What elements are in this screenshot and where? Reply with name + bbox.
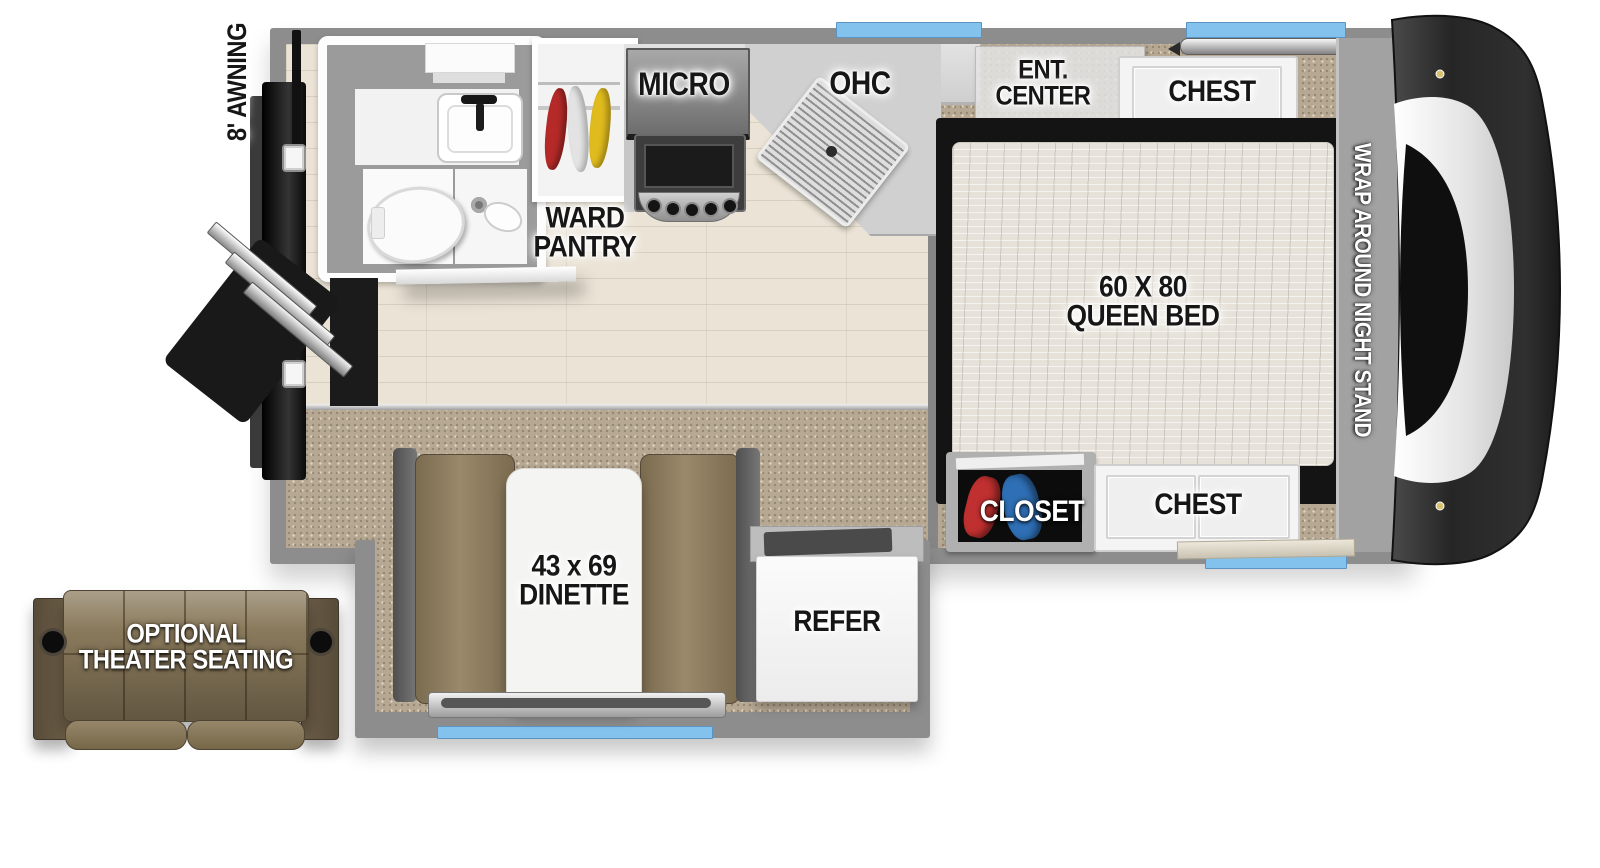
hanging-clothes-red	[542, 87, 570, 171]
pantry-shelf-line	[538, 82, 620, 85]
grab-handle-bar	[1180, 38, 1354, 55]
bench-cap-left	[393, 448, 417, 702]
cab-marker-light-top	[1436, 70, 1444, 78]
rail-latch-top	[282, 144, 306, 172]
stove-window	[644, 144, 734, 188]
stove-knob-1	[646, 198, 662, 214]
awning-label: 8' AWNING	[225, 23, 251, 141]
closet-label: CLOSET	[980, 498, 1084, 527]
dinette-window	[437, 726, 713, 739]
refer-lid	[764, 528, 893, 556]
theater-seating-label: OPTIONAL THEATER SEATING	[79, 621, 293, 672]
sink-faucet-stem	[476, 103, 484, 131]
medicine-cabinet-lip	[433, 73, 505, 83]
sofa-seat-left	[65, 720, 187, 750]
floorplan-canvas: 8' AWNING WARD PANTRY MICRO OHC ENT. CEN…	[0, 0, 1600, 868]
night-stand-label: WRAP AROUND NIGHT STAND	[1351, 143, 1373, 437]
sill-inner-line	[441, 698, 711, 708]
rail-latch-bottom	[282, 360, 306, 388]
stove-knob-3	[684, 202, 700, 218]
refer-label: REFER	[793, 608, 880, 637]
kitchen-window	[836, 22, 982, 38]
sofa-seat-right	[187, 720, 305, 750]
chest-base-shelf	[1177, 538, 1355, 559]
entry-shelf	[396, 266, 576, 284]
stove-knob-5	[722, 198, 738, 214]
grab-handle-end	[1168, 42, 1180, 56]
cab-marker-light-bottom	[1436, 502, 1444, 510]
closet-top-lip	[956, 454, 1084, 469]
sofa-cupholder-right	[307, 628, 335, 656]
dinette-label: 43 x 69 DINETTE	[519, 553, 629, 610]
bathroom-area	[318, 36, 546, 282]
ent-center-label: ENT. CENTER	[995, 57, 1090, 108]
dinette-window-sill	[428, 692, 726, 718]
ward-pantry-cabinet	[532, 38, 638, 202]
stove-knob-4	[703, 201, 719, 217]
queen-bed-label: 60 X 80 QUEEN BED	[1067, 274, 1220, 331]
sofa-cupholder-left	[39, 628, 67, 656]
front-chest-label: CHEST	[1154, 491, 1241, 520]
micro-label: MICRO	[638, 69, 730, 99]
toilet-hinge	[371, 207, 385, 239]
ward-pantry-label: WARD PANTRY	[534, 205, 637, 262]
bedroom-rear-window	[1186, 22, 1346, 38]
hanging-clothes-yellow	[587, 87, 614, 168]
medicine-cabinet	[425, 43, 515, 73]
ohc-label: OHC	[829, 68, 890, 98]
bathroom-sink	[437, 93, 523, 163]
awning-strut	[292, 30, 301, 150]
dinette-bench-left	[415, 454, 515, 704]
sink-drain-dot	[824, 144, 839, 159]
stove-knob-2	[665, 201, 681, 217]
dinette-bench-right	[640, 454, 740, 704]
rear-chest-label: CHEST	[1168, 78, 1255, 107]
hanging-clothes-white	[565, 85, 591, 172]
floor-transition-strip	[286, 404, 930, 410]
